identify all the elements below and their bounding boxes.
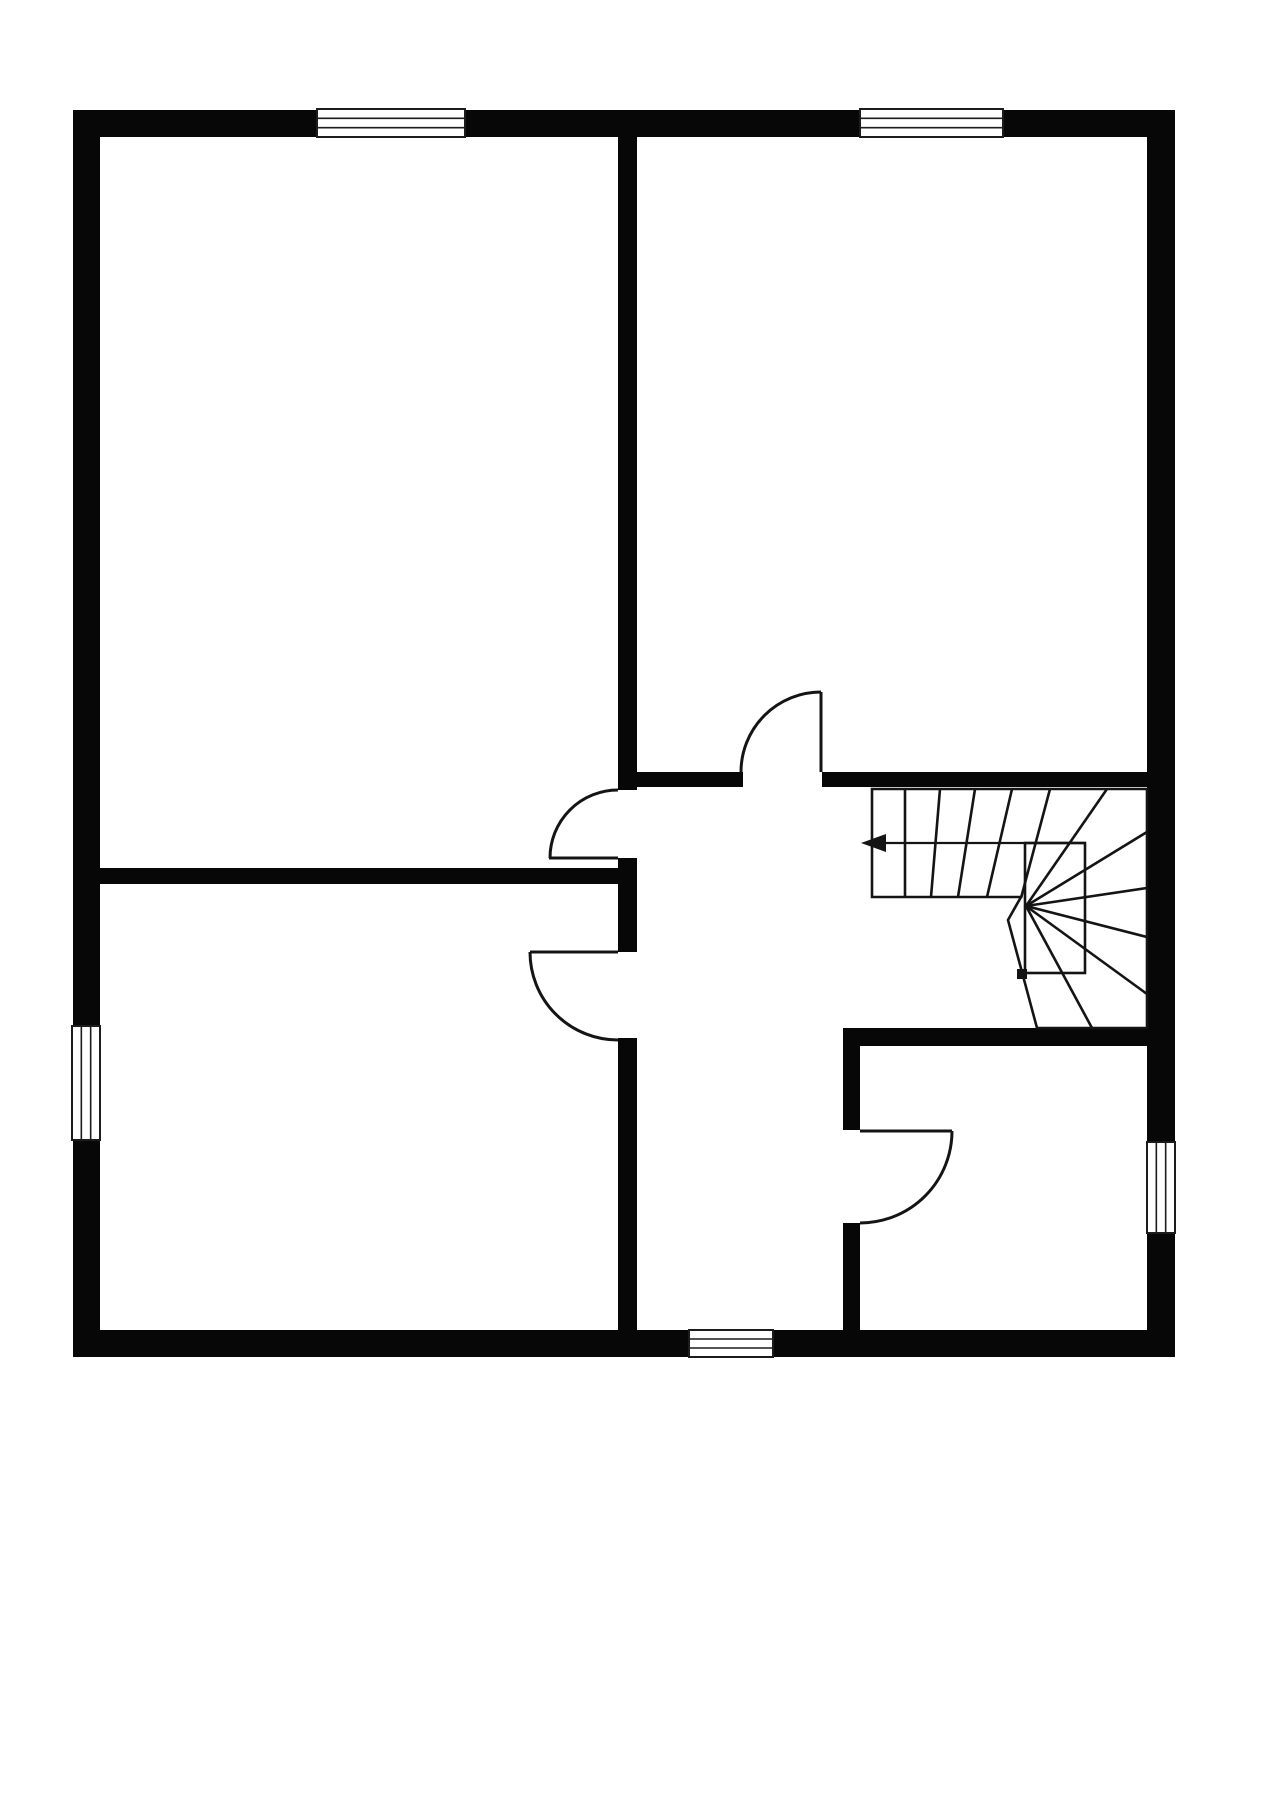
interior-wall-right-horizontal-east (822, 772, 1147, 787)
winder-staircase-outline (872, 789, 1147, 1028)
door-bottom-left-room-swing-arc (530, 952, 618, 1040)
winder-staircase-tread-10 (1026, 906, 1147, 994)
floor-plan-page (0, 0, 1280, 1811)
door-bottom-right-room-swing-arc (860, 1131, 952, 1223)
winder-staircase-tread-8 (1026, 888, 1147, 906)
window-top-right (860, 109, 1003, 137)
window-right (1147, 1142, 1175, 1233)
interior-wall-bottomright-room-west-lower (843, 1223, 860, 1330)
window-bottom (689, 1330, 773, 1357)
winder-staircase-tread-11 (1026, 906, 1092, 1028)
window-top-left (317, 109, 465, 137)
outer-wall-bottom (73, 1330, 1175, 1357)
interior-wall-right-horizontal-west (637, 772, 743, 787)
interior-wall-center-vertical-upper (618, 137, 637, 790)
door-top-right-room-swing-arc (741, 692, 821, 772)
winder-staircase-newel-post (1017, 969, 1027, 979)
winder-staircase-tread-6 (1026, 789, 1107, 906)
interior-wall-left-horizontal (98, 868, 637, 884)
winder-staircase-tread-9 (1026, 906, 1147, 937)
door-top-left-room-swing-arc (550, 790, 618, 858)
winder-staircase-direction-arrow-head (861, 834, 886, 852)
window-left (72, 1026, 100, 1140)
interior-wall-center-vertical-lower (618, 1038, 637, 1330)
interior-wall-bottomright-room-west-upper (843, 1028, 860, 1130)
floor-plan-drawing (0, 0, 1280, 1811)
outer-wall-left (73, 110, 100, 1357)
outer-wall-top (73, 110, 1175, 137)
interior-wall-bottomright-room-top (843, 1028, 1147, 1046)
